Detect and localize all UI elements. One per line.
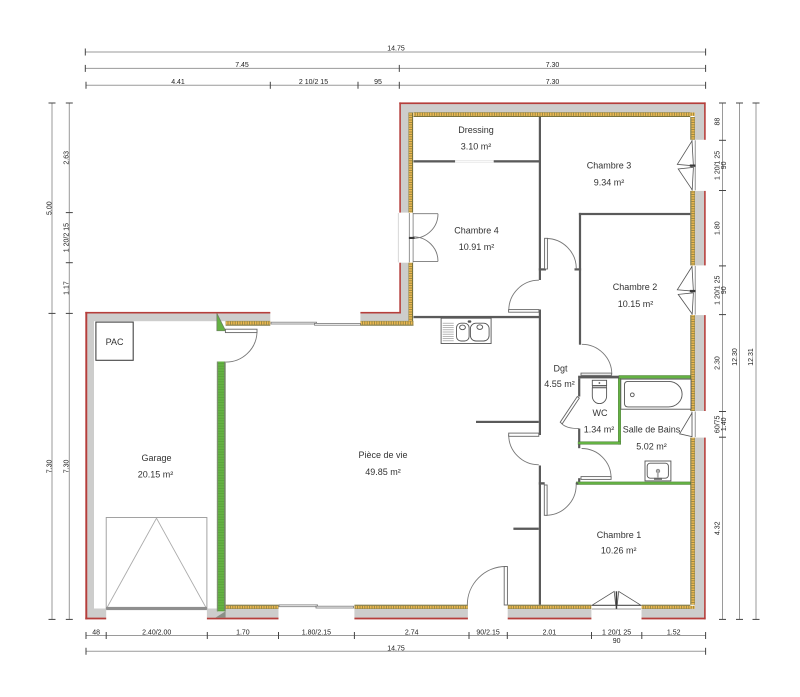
svg-text:20.15 m²: 20.15 m²	[138, 470, 174, 480]
svg-text:Chambre 2: Chambre 2	[613, 282, 658, 292]
svg-text:1.34 m²: 1.34 m²	[584, 425, 615, 435]
svg-text:14.75: 14.75	[387, 645, 405, 652]
svg-text:3.10 m²: 3.10 m²	[461, 142, 492, 152]
svg-text:10.26 m²: 10.26 m²	[601, 546, 637, 556]
svg-text:1.80/2.15: 1.80/2.15	[302, 629, 331, 636]
svg-text:Chambre 3: Chambre 3	[587, 161, 632, 171]
svg-text:Salle de Bains: Salle de Bains	[623, 425, 681, 435]
svg-text:12.30: 12.30	[732, 348, 739, 366]
svg-text:2.63: 2.63	[64, 151, 71, 165]
svg-text:2 10/2 15: 2 10/2 15	[299, 79, 328, 86]
svg-text:1.80: 1.80	[714, 221, 721, 235]
svg-text:4.41: 4.41	[171, 79, 185, 86]
svg-text:1 20/1 25: 1 20/1 25	[602, 629, 631, 636]
svg-text:7.30: 7.30	[546, 62, 560, 69]
svg-text:10.91 m²: 10.91 m²	[459, 242, 495, 252]
svg-text:Pièce de vie: Pièce de vie	[358, 450, 407, 460]
svg-text:9.34 m²: 9.34 m²	[594, 178, 625, 188]
svg-text:1.17: 1.17	[64, 281, 71, 295]
svg-text:Chambre 4: Chambre 4	[454, 226, 499, 236]
svg-text:2.74: 2.74	[405, 629, 419, 636]
svg-text:7.30: 7.30	[64, 459, 71, 473]
svg-text:Chambre 1: Chambre 1	[597, 530, 642, 540]
svg-text:88: 88	[714, 118, 721, 126]
svg-text:49.85 m²: 49.85 m²	[365, 467, 401, 477]
svg-text:90: 90	[721, 161, 728, 169]
svg-text:Dgt: Dgt	[553, 364, 568, 374]
svg-text:WC: WC	[593, 408, 608, 418]
svg-text:Garage: Garage	[141, 453, 171, 463]
svg-text:1 20/2 15: 1 20/2 15	[64, 223, 71, 252]
svg-text:2.30: 2.30	[714, 356, 721, 370]
svg-text:7.30: 7.30	[546, 79, 560, 86]
svg-text:90: 90	[613, 638, 621, 645]
svg-text:4.32: 4.32	[714, 521, 721, 535]
svg-text:2.01: 2.01	[543, 629, 557, 636]
svg-text:1.52: 1.52	[667, 629, 681, 636]
svg-text:2.40/2.00: 2.40/2.00	[142, 629, 171, 636]
svg-text:1.40: 1.40	[721, 417, 728, 431]
svg-text:7.45: 7.45	[235, 62, 249, 69]
svg-text:90/2.15: 90/2.15	[476, 629, 499, 636]
svg-text:5.00: 5.00	[46, 201, 53, 215]
svg-text:90: 90	[721, 286, 728, 294]
svg-text:10.15 m²: 10.15 m²	[618, 299, 654, 309]
svg-text:PAC: PAC	[106, 337, 124, 347]
svg-text:5.02 m²: 5.02 m²	[636, 442, 667, 452]
svg-text:7.30: 7.30	[46, 459, 53, 473]
svg-text:14.75: 14.75	[387, 45, 405, 52]
svg-text:4.55 m²: 4.55 m²	[544, 379, 575, 389]
svg-text:12.31: 12.31	[748, 348, 755, 366]
svg-text:48: 48	[92, 629, 100, 636]
svg-text:1.70: 1.70	[236, 629, 250, 636]
svg-text:Dressing: Dressing	[458, 125, 494, 135]
svg-text:95: 95	[374, 79, 382, 86]
